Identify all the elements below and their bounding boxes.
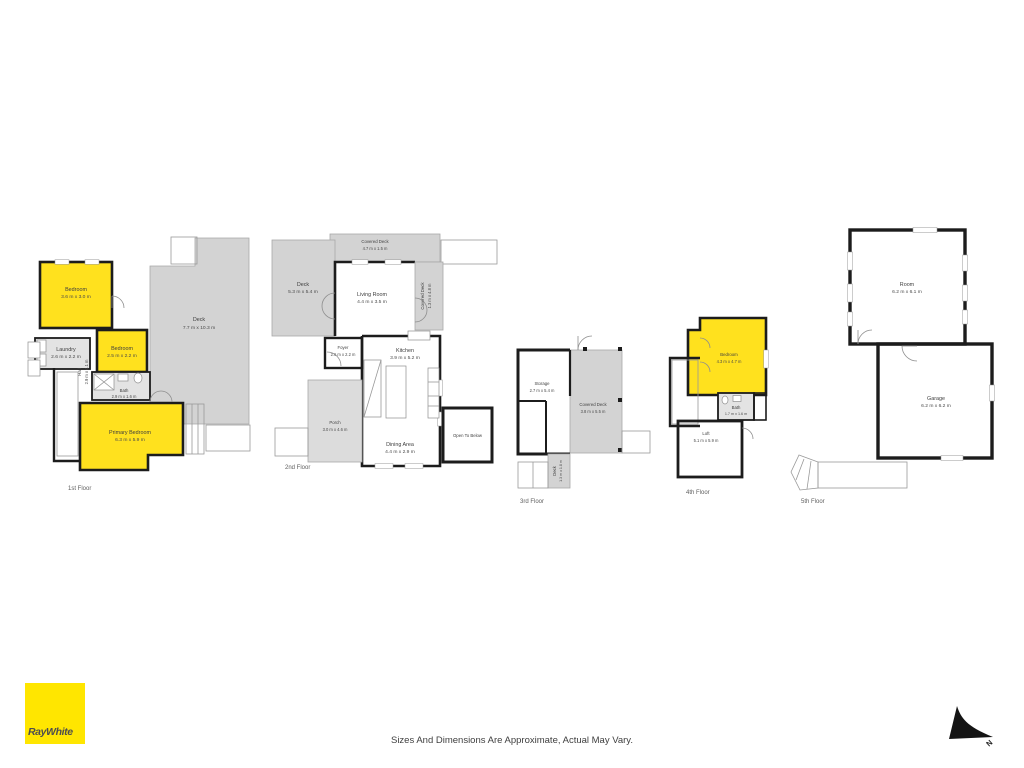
room-label: Bath — [732, 405, 741, 410]
floorplan-4th-floor: Bedroom 4.3 m x 4.7 m Bath 1.7 m x 1.6 m… — [670, 318, 768, 496]
room-label: Open To Below — [453, 433, 483, 438]
room-dims: 4.3 m x 4.7 m — [717, 359, 742, 364]
room-dims: 5.3 m x 5.4 m — [288, 289, 318, 295]
room-label: Living Room — [357, 292, 387, 298]
room-dims: 2.6 m x 2.2 m — [51, 354, 81, 360]
room-label: Bedroom — [720, 352, 738, 357]
room-dims: 4.4 m x 2.9 m — [385, 449, 415, 455]
room-dims: 4.4 m x 3.5 m — [357, 299, 387, 305]
room-dims: 1.3 m x 4.8 m — [427, 283, 432, 308]
floorplan-2nd-floor: Covered Deck 4.7 m x 1.5 m Deck 5.3 m x … — [272, 234, 497, 471]
room-dims: 6.2 m x 6.2 m — [921, 403, 951, 409]
deck-area — [150, 238, 249, 424]
floorplan-3rd-floor: Covered Deck 3.8 m x 5.5 m Storage 2.7 m… — [518, 336, 650, 505]
sink — [733, 396, 741, 402]
kitchen-island — [386, 366, 406, 418]
floor-label: 3rd Floor — [520, 499, 544, 505]
room-label: Deck — [552, 465, 557, 476]
toilet — [134, 373, 142, 383]
room-label: Covered Deck — [361, 239, 389, 244]
deck-area — [272, 240, 335, 336]
room-dims: 3.9 m x 5.2 m — [390, 355, 420, 361]
boardwalk-stairs — [818, 462, 907, 488]
room-label: Kitchen — [396, 348, 414, 354]
post — [618, 398, 622, 402]
room-label: Deck — [297, 282, 310, 288]
room-dims: 4.7 m x 1.5 m — [363, 246, 388, 251]
closet — [28, 360, 40, 376]
room-dims: 6.2 m x 6.1 m — [892, 289, 922, 295]
window — [405, 464, 423, 469]
interior-wall — [518, 401, 546, 454]
living-room-wall — [335, 262, 415, 336]
room-label: Hall — [77, 368, 82, 375]
room-label: Foyer — [338, 345, 350, 350]
floor-label: 4th Floor — [686, 490, 710, 496]
room-label: Storage — [534, 381, 550, 386]
floor-label: 1st Floor — [68, 486, 91, 492]
window — [764, 350, 769, 368]
room-label: Bedroom — [65, 287, 87, 293]
room-dims: 2.9 m x 4.1 m — [84, 359, 89, 384]
room-label: Porch — [329, 420, 341, 425]
room-label: Garage — [927, 396, 945, 402]
window — [848, 284, 853, 302]
room-dims: 5.1 m x 5.9 m — [694, 438, 719, 443]
stairs — [57, 372, 78, 456]
stair-landing — [791, 455, 818, 490]
room-dims: 2.5 m x 2.2 m — [107, 353, 137, 359]
closet — [28, 342, 40, 358]
stairs — [622, 431, 650, 453]
room-label: Covered Deck — [420, 282, 425, 310]
room-dims: 2.9 m x 1.6 m — [112, 394, 137, 399]
room-dims: 1.7 m x 1.6 m — [725, 412, 747, 416]
door — [112, 296, 124, 308]
room-dims: 6.3 m x 5.9 m — [115, 437, 145, 443]
room-label: Dining Area — [386, 442, 414, 448]
room-primary-bedroom — [80, 403, 183, 470]
stairs — [206, 425, 250, 451]
window — [85, 260, 99, 265]
post — [583, 347, 587, 351]
window — [55, 260, 69, 265]
room-loft — [678, 421, 742, 477]
door — [742, 428, 753, 439]
door — [902, 346, 917, 361]
floor-label: 2nd Floor — [285, 465, 310, 471]
room-label: Room — [900, 282, 915, 288]
stairs — [171, 237, 197, 264]
window — [848, 252, 853, 270]
floorplan-5th-floor: Room 6.2 m x 6.1 m Garage 6.2 m x 6.2 m … — [791, 228, 995, 506]
room-label: Bedroom — [111, 346, 133, 352]
post — [618, 347, 622, 351]
stairs — [275, 428, 308, 456]
room-dims: 3.8 m x 5.5 m — [581, 409, 606, 414]
room-label: Bath — [120, 388, 129, 393]
floorplans-svg: Deck 7.7 m x 10.3 m Bedroom 3.6 m x 3.0 … — [0, 0, 1024, 768]
sink — [118, 374, 128, 381]
room-dims: 7.7 m x 10.3 m — [183, 325, 215, 331]
post — [618, 448, 622, 452]
floorplan-1st-floor: Deck 7.7 m x 10.3 m Bedroom 3.6 m x 3.0 … — [28, 237, 250, 492]
window — [352, 260, 368, 265]
room-label: Primary Bedroom — [109, 430, 151, 436]
window — [385, 260, 401, 265]
window — [848, 312, 853, 326]
kitchen-counter — [428, 368, 439, 418]
room-label: Covered Deck — [579, 402, 607, 407]
disclaimer-text: Sizes And Dimensions Are Approximate, Ac… — [0, 735, 1024, 746]
window — [375, 464, 393, 469]
floorplan-page: Deck 7.7 m x 10.3 m Bedroom 3.6 m x 3.0 … — [0, 0, 1024, 768]
room-dims: 2.7 m x 5.4 m — [530, 388, 555, 393]
closet — [754, 393, 766, 420]
window — [963, 285, 968, 301]
stairs — [441, 240, 497, 264]
window — [941, 456, 963, 461]
appliance — [408, 331, 430, 340]
room-label: Loft — [702, 431, 710, 436]
floor-label: 5th Floor — [801, 499, 825, 505]
window — [913, 228, 937, 233]
window — [963, 310, 968, 324]
room-label: Laundry — [56, 347, 76, 353]
room-dims: 3.0 m x 4.6 m — [323, 427, 348, 432]
window — [963, 255, 968, 271]
room-dims: 1.3 m x 1.8 m — [559, 460, 563, 482]
room-dims: 3.6 m x 3.0 m — [61, 294, 91, 300]
window — [990, 385, 995, 401]
room-label: Deck — [193, 317, 206, 323]
door — [858, 330, 872, 344]
toilet — [722, 396, 728, 404]
